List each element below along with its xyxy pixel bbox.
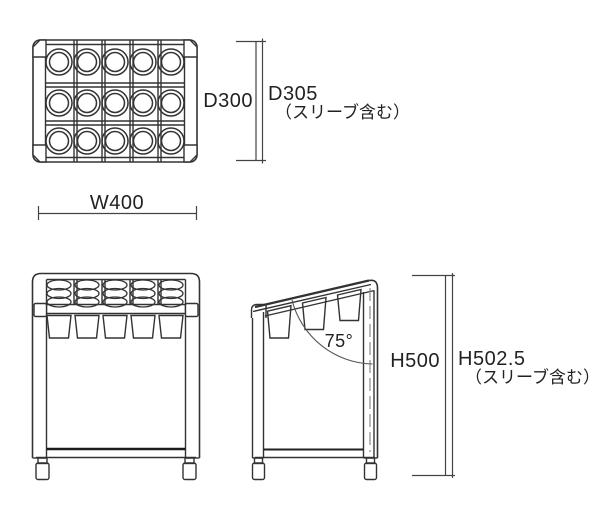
d305-sleeve-note: （スリーブ含む） [275,104,410,122]
front-view [33,274,200,480]
front-ring-edges [47,280,183,307]
front-sleeve-cups [47,316,183,339]
side-view [252,280,378,479]
drawing-linework [0,0,600,510]
front-mid-rail [34,304,198,317]
front-feet [36,458,196,480]
angle-75-label: 75° [314,332,364,351]
dimension-h500 [412,276,455,476]
side-feet [253,458,377,480]
w400-dimension-label: W400 [57,193,177,214]
d305-dimension-label: D305 [268,84,318,105]
umbrella-slot-rings [46,49,184,154]
h502-dimension-label: H502.5 [458,349,526,370]
front-column-rails [74,280,161,305]
h502-sleeve-note: （スリーブ含む） [465,369,600,387]
d300-dimension-label: D300 [173,91,253,112]
plan-column-rails [74,41,161,162]
umbrella-stand-technical-drawing: D300 D305 （スリーブ含む） W400 75° H500 H502.5 … [0,0,600,510]
h500-dimension-label: H500 [360,351,440,372]
front-outer-frame [33,274,200,459]
